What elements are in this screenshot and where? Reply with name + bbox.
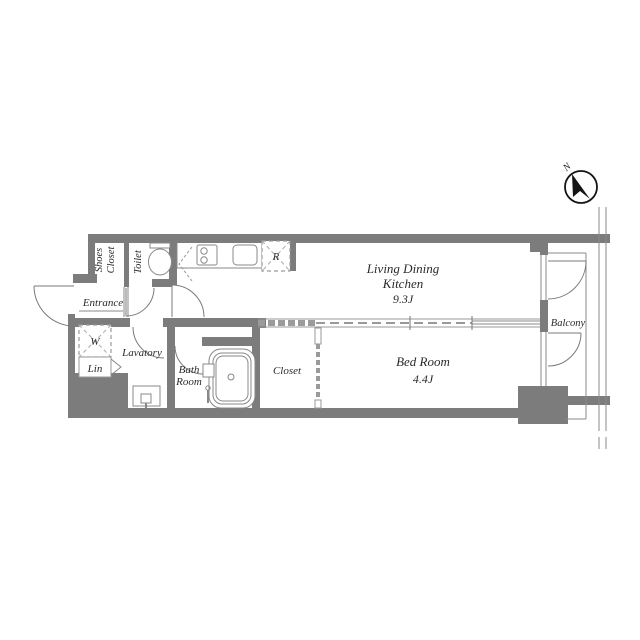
refrigerator-label: R [272,252,280,263]
wall-segment [73,373,128,413]
entrance-label: Entrance [82,297,123,309]
wall-segment [152,279,172,287]
bedroom-label: Bed Room [396,354,450,369]
ldk-label-line1: Living Dining [366,261,440,276]
floorplan-canvas: N Shoes Closet Toilet Entrance W Lin Lav… [0,0,640,640]
toilet-folding-door [179,247,192,281]
wall-segment [167,326,175,413]
vanity-sink [133,386,160,408]
compass-north-label: N [560,160,574,174]
wall-segment [124,279,129,287]
wall-segment [540,243,548,255]
wall-segment [73,274,97,283]
bathroom-label-line2: Room [175,376,202,388]
lavatory-label: Lavatory [121,347,162,359]
toilet-label: Toilet [133,249,144,274]
bathroom-label-line1: Bath [179,364,200,376]
linen-label: Lin [87,363,103,375]
wall-segment [68,408,523,418]
bath-faucet-counter [203,364,214,377]
wall-segment [540,300,548,332]
window-door-arc [548,333,581,366]
ldk-size-label: 9.3J [393,292,414,306]
washer-label: W [90,336,100,348]
wall-segment [568,396,610,405]
wall-segment [124,234,129,279]
closet-folding-door [315,328,321,408]
bathtub [209,349,255,408]
wall-segment [163,318,258,327]
compass-icon: N [560,160,597,203]
kitchen-sink-icon [233,245,257,265]
floorplan-drawing: N Shoes Closet Toilet Entrance W Lin Lav… [0,0,640,640]
window-door-arc [548,261,586,299]
bedroom-size-label: 4.4J [413,372,434,386]
kitchen-counter [177,243,262,268]
closet-label: Closet [273,365,302,377]
hall-door-arc [172,285,204,317]
shoes-closet-label-line1: Shoes [94,248,105,273]
ldk-label-line2: Kitchen [382,276,423,291]
wall-segment [290,239,296,271]
site-boundary-lines [599,207,606,449]
wall-segment [202,337,258,346]
balcony-label: Balcony [551,318,586,329]
shoes-closet-label-line2: Closet [106,246,117,274]
sliding-partition [258,316,540,330]
toilet-door-arc [126,288,154,316]
linen-door-flap [111,359,121,375]
wall-segment [518,386,568,424]
